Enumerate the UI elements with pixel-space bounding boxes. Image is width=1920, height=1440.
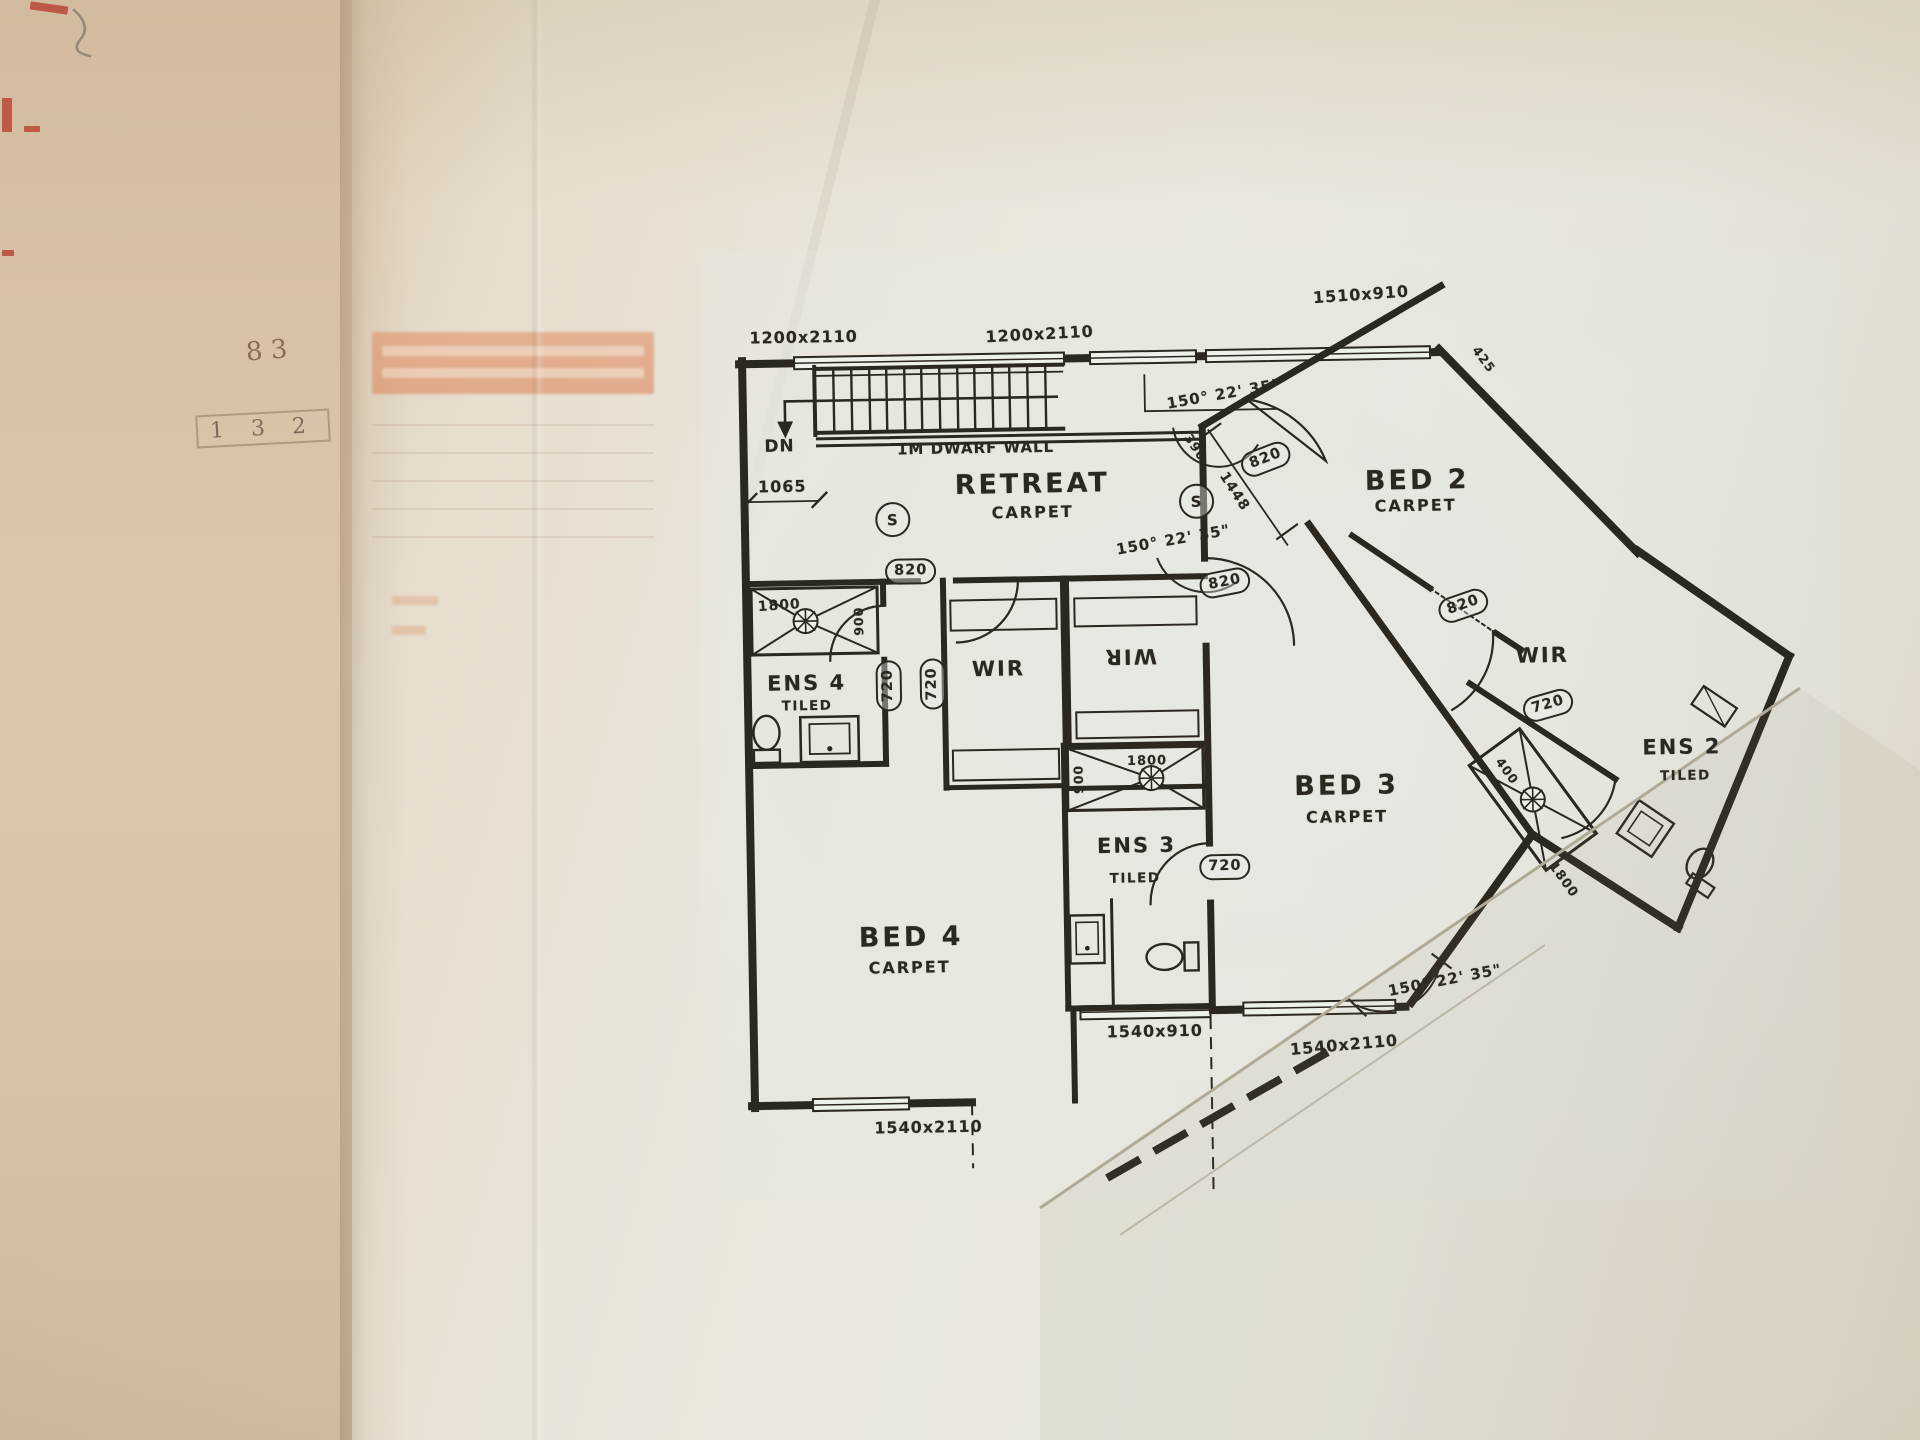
window-size-label: 1200x2110 bbox=[749, 327, 858, 348]
angle-label: 150° 22' 35" bbox=[1165, 375, 1282, 413]
door-size-820: 820 bbox=[885, 558, 937, 585]
window-size-label: 1540x2110 bbox=[874, 1117, 983, 1138]
shower-dimension: 400 bbox=[1493, 755, 1522, 787]
dimension-label: 425 bbox=[1469, 343, 1498, 375]
photo-of-floorplan-sheet: 8 3 1 3 2 bbox=[0, 0, 1920, 1440]
dimension-label: 390 bbox=[1181, 431, 1209, 464]
room-name-bed3: BED 3 bbox=[1294, 769, 1399, 802]
door-size-820: 820 bbox=[1435, 585, 1492, 626]
window-size-label: 1540x910 bbox=[1107, 1021, 1204, 1042]
door-size-820: 820 bbox=[1197, 565, 1252, 600]
dimension-label: 1065 bbox=[758, 477, 807, 497]
room-name-retreat: RETREAT bbox=[954, 467, 1110, 501]
window-size-label: 1510x910 bbox=[1312, 282, 1409, 308]
door-size-720: 720 bbox=[919, 658, 946, 710]
room-finish-ens4: TILED bbox=[782, 698, 833, 715]
room-name-wir-right: WIR bbox=[1516, 643, 1570, 668]
angle-label: 150° 22' 35" bbox=[1115, 521, 1232, 559]
shower-dimension: 1800 bbox=[757, 596, 801, 615]
dimension-label: 1448 bbox=[1216, 469, 1253, 514]
dwarf-wall-note: 1M DWARF WALL bbox=[897, 438, 1054, 459]
plan-annotations: 1200x2110 1200x2110 1510x910 425 DN 1M D… bbox=[0, 0, 1920, 1440]
room-finish-bed3: CARPET bbox=[1306, 806, 1388, 826]
smoke-detector-icon: S bbox=[1179, 483, 1215, 519]
shower-dimension: 1800 bbox=[1127, 753, 1167, 769]
room-name-ens4: ENS 4 bbox=[767, 670, 846, 695]
room-finish-bed4: CARPET bbox=[868, 957, 950, 977]
room-name-bed2: BED 2 bbox=[1365, 464, 1470, 497]
door-size-720: 720 bbox=[1199, 854, 1251, 881]
room-finish-ens2: TILED bbox=[1660, 767, 1711, 784]
room-name-ens3: ENS 3 bbox=[1097, 833, 1176, 858]
window-size-label: 1540x2110 bbox=[1289, 1031, 1399, 1059]
room-name-wir-mid: WIR bbox=[1103, 644, 1157, 669]
stair-down-label: DN bbox=[764, 436, 795, 457]
room-name-bed4: BED 4 bbox=[859, 921, 964, 954]
room-name-ens2: ENS 2 bbox=[1642, 734, 1721, 759]
door-size-720: 720 bbox=[1520, 686, 1576, 725]
angle-label: 150° 22' 35" bbox=[1387, 960, 1504, 1000]
shower-dimension: 1800 bbox=[1545, 859, 1581, 900]
door-size-820: 820 bbox=[1237, 438, 1294, 480]
room-finish-retreat: CARPET bbox=[992, 502, 1074, 522]
smoke-detector-icon: S bbox=[875, 502, 911, 538]
window-size-label: 1200x2110 bbox=[985, 322, 1094, 347]
room-finish-ens3: TILED bbox=[1110, 870, 1161, 887]
door-size-720: 720 bbox=[875, 660, 902, 712]
shower-dimension: 900 bbox=[1071, 765, 1087, 794]
shower-dimension: 900 bbox=[851, 607, 867, 636]
room-finish-bed2: CARPET bbox=[1374, 495, 1456, 515]
room-name-wir-left: WIR bbox=[972, 656, 1026, 681]
